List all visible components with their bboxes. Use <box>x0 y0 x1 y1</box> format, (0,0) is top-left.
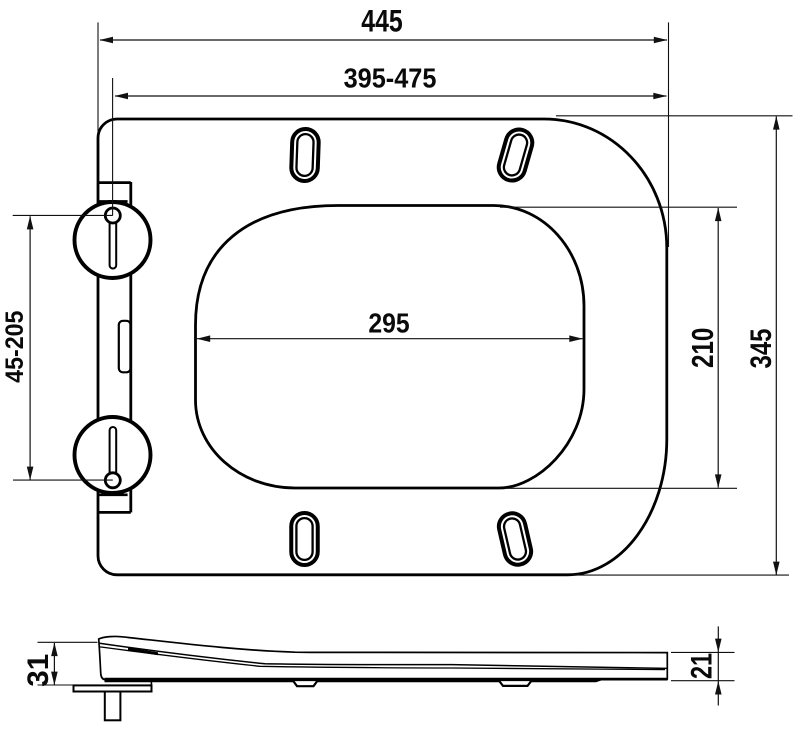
svg-text:295: 295 <box>368 307 409 339</box>
svg-text:45-205: 45-205 <box>1 311 29 383</box>
svg-text:21: 21 <box>685 653 718 679</box>
svg-text:395-475: 395-475 <box>344 63 437 94</box>
svg-text:210: 210 <box>685 328 720 368</box>
svg-text:345: 345 <box>743 328 777 368</box>
svg-text:445: 445 <box>361 4 403 40</box>
svg-text:31: 31 <box>22 654 55 687</box>
